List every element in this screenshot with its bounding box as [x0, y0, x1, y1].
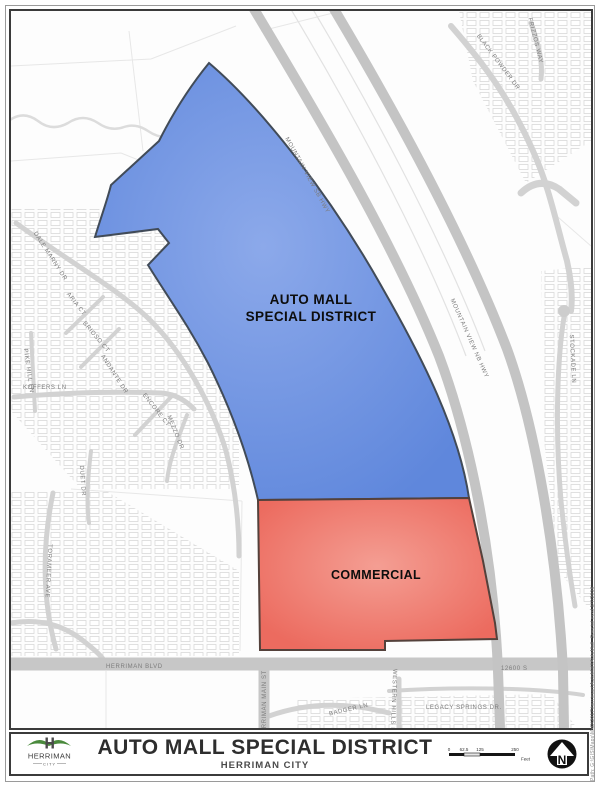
logo-sub: CITY	[43, 762, 56, 767]
herriman-logo-icon: HERRIMAN CITY	[21, 735, 79, 773]
stream-line	[11, 115, 170, 137]
street-label-herriman-main: HERRIMAN MAIN ST	[262, 670, 268, 728]
north-arrow: N	[537, 738, 587, 770]
north-label: N	[558, 753, 567, 767]
street-label-herriman-blvd: HERRIMAN BLVD	[106, 664, 163, 670]
north-arrow-icon: N	[546, 738, 578, 770]
map-svg: AUTO MALL SPECIAL DISTRICT COMMERCIAL MO…	[11, 11, 591, 728]
map-title: AUTO MALL SPECIAL DISTRICT	[89, 737, 441, 759]
title-bar: HERRIMAN CITY AUTO MALL SPECIAL DISTRICT…	[9, 732, 589, 776]
herriman-city-logo: HERRIMAN CITY	[11, 735, 89, 773]
map-subtitle: HERRIMAN CITY	[89, 761, 441, 771]
scale-tick-1: 62.5	[460, 747, 469, 752]
scale-tick-0: 0	[448, 747, 451, 752]
scale-bar-svg: 0 62.5 125 250 Feet	[443, 746, 535, 762]
auto-mall-label-line2: SPECIAL DISTRICT	[246, 309, 377, 324]
street-label-12600-s: 12600 S	[501, 666, 528, 672]
file-path-note: Path: G:\GIS\Maps\MxD\2017\herriman\Auto…	[590, 586, 596, 781]
street-label-legacy-springs: LEGACY SPRINGS DR.	[426, 705, 502, 711]
auto-mall-label-line1: AUTO MALL	[270, 292, 353, 307]
logo-name: HERRIMAN	[28, 752, 71, 761]
street-label-koffers: KOFFERS LN	[23, 385, 67, 391]
cul-de-sac	[558, 305, 570, 317]
commercial-label: COMMERCIAL	[331, 568, 421, 582]
scale-tick-3: 250	[511, 747, 519, 752]
scale-unit: Feet	[521, 757, 531, 762]
scale-bar: 0 62.5 125 250 Feet	[441, 746, 537, 762]
scale-tick-2: 125	[476, 747, 484, 752]
map-canvas: AUTO MALL SPECIAL DISTRICT COMMERCIAL MO…	[9, 9, 593, 730]
